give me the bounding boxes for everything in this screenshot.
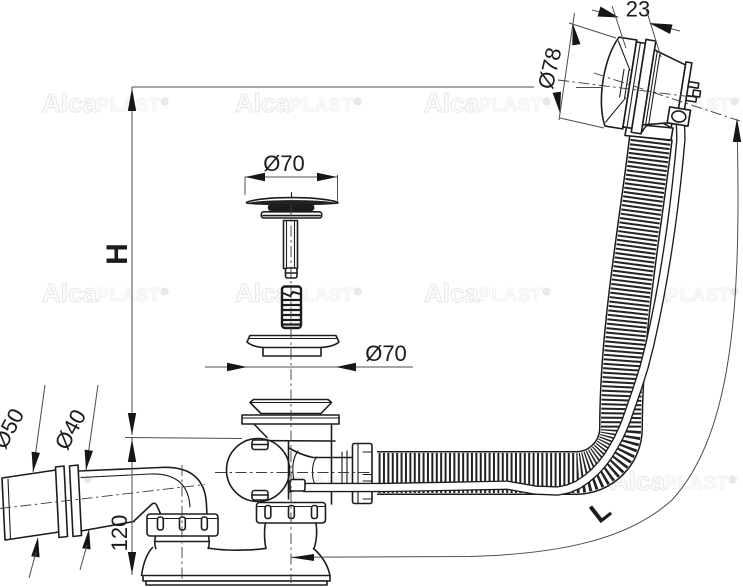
svg-text:120: 120: [107, 515, 132, 552]
svg-text:Ø70: Ø70: [263, 151, 305, 176]
svg-text:H: H: [101, 243, 134, 265]
svg-text:Ø70: Ø70: [365, 341, 407, 366]
